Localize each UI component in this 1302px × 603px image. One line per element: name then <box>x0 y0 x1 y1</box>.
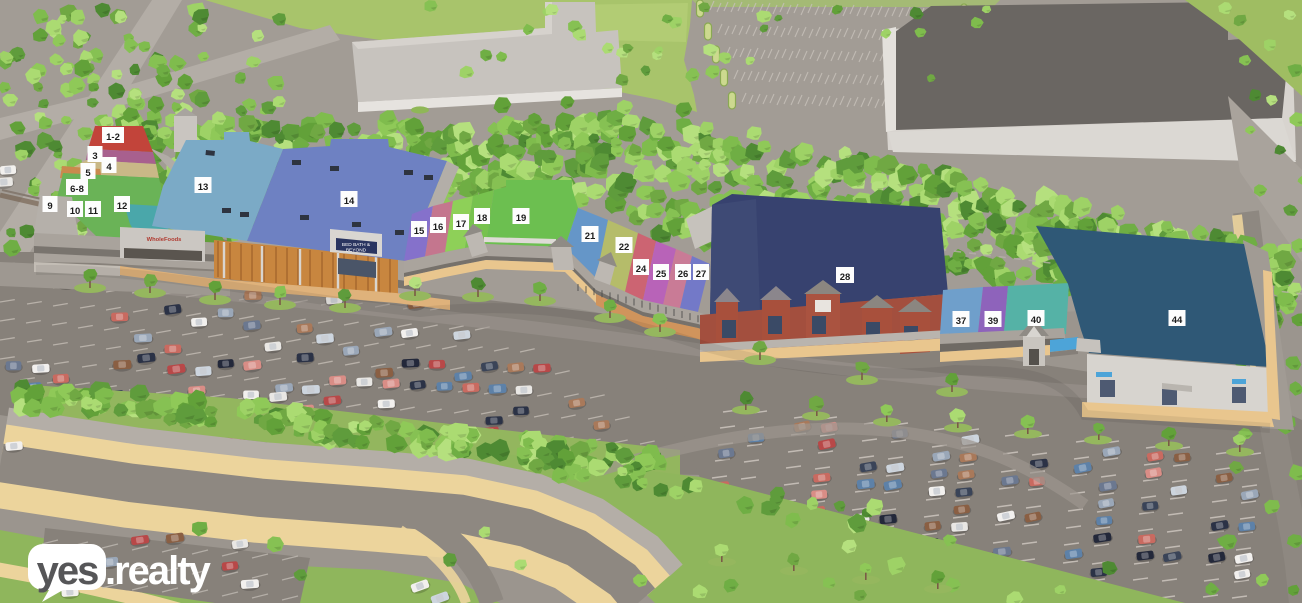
svg-text:24: 24 <box>636 264 647 275</box>
svg-text:.realty: .realty <box>105 549 212 593</box>
svg-text:27: 27 <box>696 269 707 280</box>
svg-text:44: 44 <box>1172 315 1183 326</box>
svg-text:15: 15 <box>414 226 425 237</box>
svg-text:14: 14 <box>344 196 355 207</box>
svg-text:25: 25 <box>656 269 667 280</box>
svg-text:17: 17 <box>456 219 467 230</box>
svg-text:16: 16 <box>433 222 444 233</box>
svg-text:18: 18 <box>477 213 488 224</box>
svg-text:5: 5 <box>85 168 91 179</box>
svg-text:40: 40 <box>1031 315 1042 326</box>
svg-text:13: 13 <box>198 182 209 193</box>
svg-text:6-8: 6-8 <box>70 184 84 195</box>
svg-text:37: 37 <box>956 316 967 327</box>
svg-text:21: 21 <box>585 231 596 242</box>
svg-text:1-2: 1-2 <box>106 132 120 143</box>
svg-text:11: 11 <box>88 206 99 217</box>
svg-text:4: 4 <box>106 162 112 173</box>
svg-text:3: 3 <box>92 151 97 162</box>
svg-text:BED BATH &: BED BATH & <box>342 242 371 248</box>
svg-text:22: 22 <box>619 242 630 253</box>
svg-text:12: 12 <box>117 201 128 212</box>
svg-text:BEYOND: BEYOND <box>346 248 367 254</box>
svg-text:26: 26 <box>678 269 689 280</box>
svg-text:19: 19 <box>516 213 527 224</box>
svg-text:28: 28 <box>840 272 851 283</box>
svg-text:yes: yes <box>37 549 98 593</box>
svg-text:WholeFoods: WholeFoods <box>147 237 182 243</box>
svg-text:39: 39 <box>988 316 999 327</box>
svg-text:10: 10 <box>70 206 81 217</box>
svg-text:9: 9 <box>47 201 52 212</box>
